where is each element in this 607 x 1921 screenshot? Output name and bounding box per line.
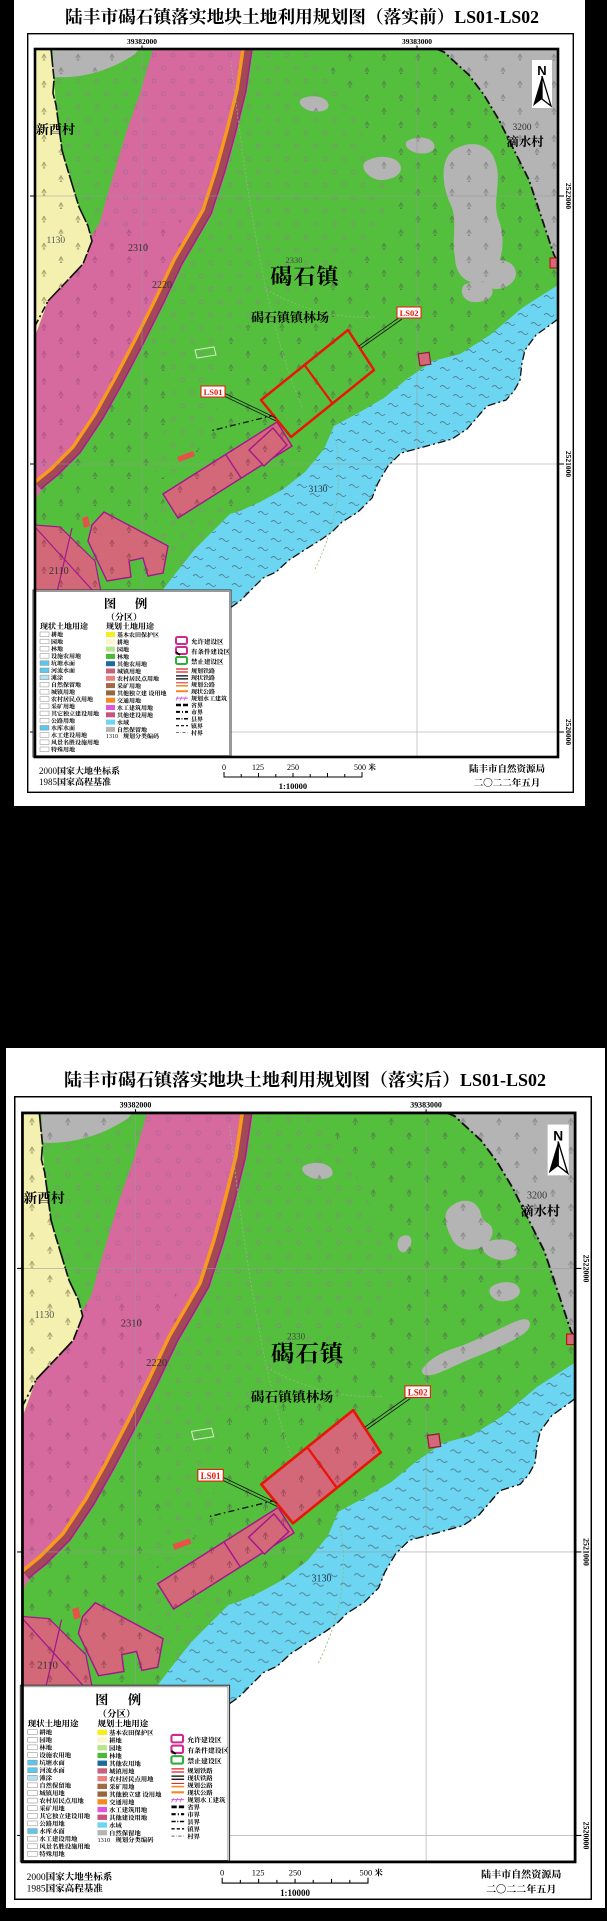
svg-text:2521000: 2521000 (564, 451, 573, 478)
svg-text:125: 125 (252, 1868, 265, 1878)
svg-text:3200: 3200 (513, 123, 532, 133)
svg-text:LS02: LS02 (408, 1387, 428, 1397)
svg-text:2000: 2000 (27, 1873, 46, 1883)
svg-text:3130: 3130 (309, 485, 328, 495)
svg-text:0: 0 (222, 763, 226, 772)
svg-text:39383000: 39383000 (410, 1101, 442, 1110)
svg-text:2522000: 2522000 (582, 1255, 591, 1283)
svg-text:250: 250 (287, 763, 299, 772)
svg-text:2000: 2000 (39, 766, 58, 776)
svg-text:3130: 3130 (311, 1574, 331, 1585)
svg-text:500: 500 (354, 763, 366, 772)
svg-text:2220: 2220 (146, 1358, 167, 1369)
svg-text:2310: 2310 (128, 243, 148, 254)
svg-text:LS02: LS02 (400, 308, 419, 318)
svg-text:39382000: 39382000 (127, 37, 157, 46)
svg-text:1985: 1985 (39, 777, 58, 787)
svg-text:39382000: 39382000 (120, 1101, 152, 1110)
svg-text:1985: 1985 (27, 1885, 46, 1895)
svg-text:1:10000: 1:10000 (279, 781, 307, 791)
svg-text:LS01-LS02: LS01-LS02 (460, 1070, 546, 1090)
svg-text:LS01: LS01 (201, 1471, 221, 1481)
svg-text:2521000: 2521000 (582, 1538, 591, 1566)
svg-text:1310: 1310 (106, 734, 118, 740)
svg-text:2520000: 2520000 (582, 1822, 591, 1850)
svg-text:1130: 1130 (47, 236, 66, 246)
svg-text:N: N (537, 63, 546, 78)
svg-text:2110: 2110 (49, 566, 69, 577)
svg-text:2310: 2310 (121, 1319, 142, 1330)
svg-text:2520000: 2520000 (564, 719, 573, 746)
svg-text:1130: 1130 (35, 1310, 55, 1321)
svg-text:0: 0 (220, 1868, 224, 1878)
svg-text:3200: 3200 (527, 1191, 547, 1202)
svg-text:N: N (553, 1128, 563, 1143)
svg-text:125: 125 (252, 763, 264, 772)
svg-text:2220: 2220 (152, 280, 172, 291)
svg-text:2330: 2330 (287, 1331, 305, 1341)
svg-text:LS01: LS01 (204, 387, 223, 397)
svg-text:39383000: 39383000 (402, 37, 432, 46)
svg-text:1:10000: 1:10000 (280, 1888, 310, 1898)
svg-text:2330: 2330 (286, 255, 303, 265)
svg-text:500: 500 (360, 1868, 373, 1878)
svg-text:2110: 2110 (37, 1660, 58, 1671)
svg-text:2522000: 2522000 (564, 183, 573, 210)
svg-text:1310: 1310 (97, 1837, 110, 1844)
svg-text:250: 250 (289, 1868, 302, 1878)
svg-text:LS01-LS02: LS01-LS02 (454, 7, 539, 27)
